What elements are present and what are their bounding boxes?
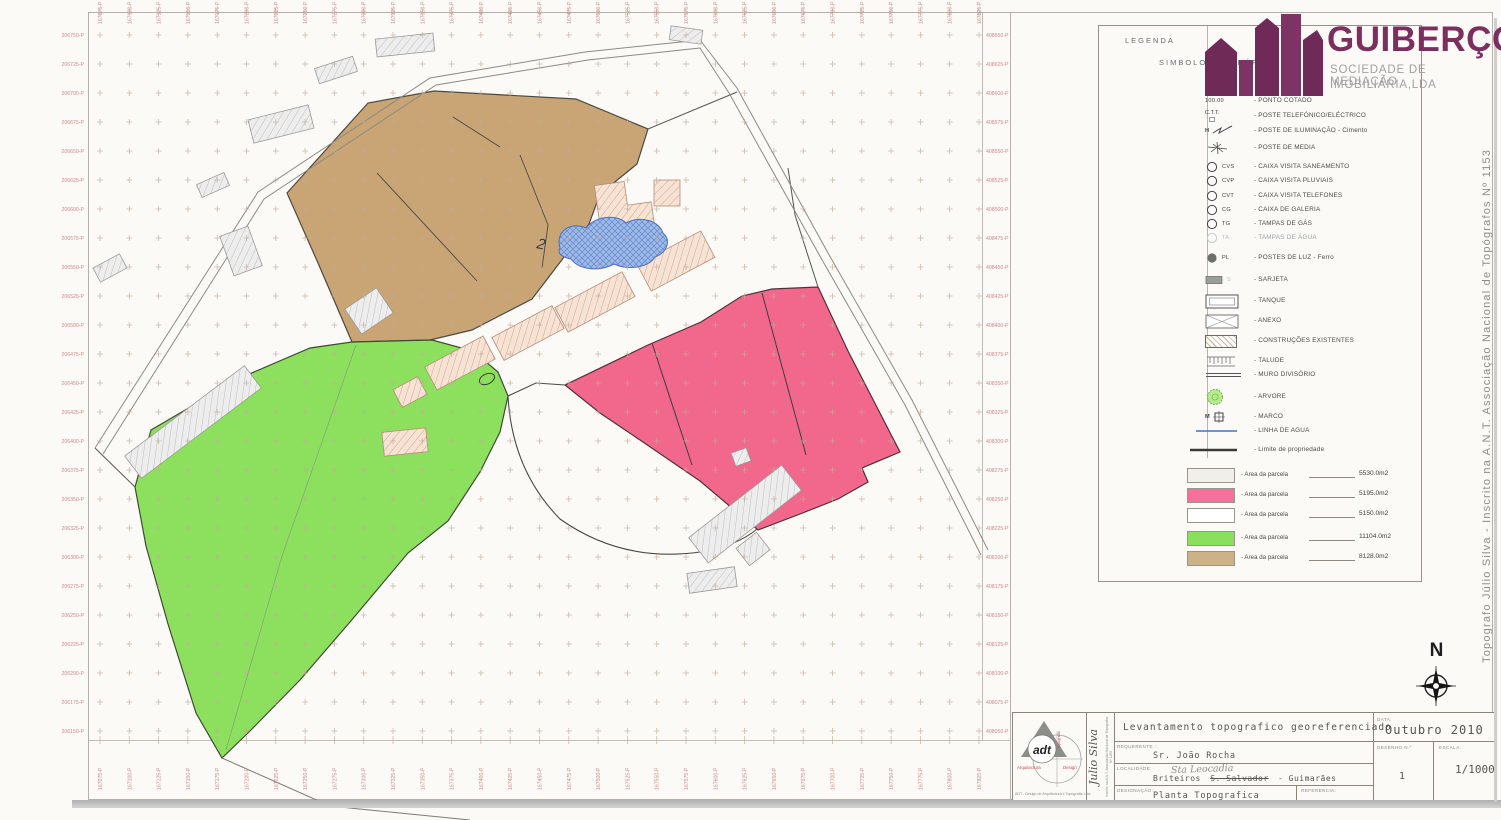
coordinate-label: 408400-P: [986, 323, 1009, 329]
legend-item-label: - CAIXA VISITA PLUVIAIS: [1254, 177, 1333, 184]
coordinate-label: 206375-P: [62, 468, 85, 474]
adt-logo: adt Arquitectura Design Topografia: [1013, 713, 1086, 791]
north-label: N: [1412, 640, 1462, 662]
coordinate-label: 408325-P: [986, 410, 1009, 416]
legend-item-label: - TANQUE: [1254, 297, 1286, 304]
coordinate-label: 206300-P: [62, 555, 85, 561]
coordinate-label: 167650-P: [772, 1, 778, 24]
coordinate-label: 408300-P: [986, 439, 1009, 445]
talude-icon: [1205, 354, 1251, 368]
compass-icon: [1412, 662, 1460, 710]
localidade-label: LOCALIDADE:: [1117, 766, 1152, 771]
coordinate-label: 206575-P: [62, 236, 85, 242]
legend-item: S- SARJETA: [1099, 273, 1421, 288]
muro-icon: [1205, 368, 1251, 382]
coordinate-label: 167400-P: [479, 1, 485, 24]
coordinate-label: 408125-P: [986, 642, 1009, 648]
parcel-area-label: - Area da parcela: [1241, 511, 1288, 518]
parcel-area-label: - Area da parcela: [1241, 554, 1288, 561]
coordinate-label: 206175-P: [62, 700, 85, 706]
coordinate-label: 206225-P: [62, 642, 85, 648]
parcel-area-value: 5530.0m2: [1359, 470, 1388, 477]
coordinate-label: 167300-P: [362, 1, 368, 24]
drawing-title: Levantamento topografico georeferenciado: [1123, 722, 1392, 733]
coordinate-label: 167725-P: [860, 1, 866, 24]
legend-item-label: - SARJETA: [1254, 276, 1288, 283]
coordinate-label: 167100-P: [127, 767, 133, 790]
svg-text:Design: Design: [1063, 765, 1077, 770]
coordinate-label: 206550-P: [62, 265, 85, 271]
coordinate-label: 408525-P: [986, 178, 1009, 184]
coordinate-label: 167350-P: [420, 767, 426, 790]
legend-item: H- POSTE DE ILUMINAÇÃO - Cimento: [1099, 124, 1421, 139]
coordinate-label: 408050-P: [986, 729, 1009, 735]
legend-item-label: - LINHA DE AGUA: [1254, 427, 1310, 434]
escala-value: 1/1000: [1455, 763, 1495, 776]
parcel-area-row: - Area da parcela5195.0m2: [1099, 488, 1421, 504]
coordinate-label: 167675-P: [801, 767, 807, 790]
parcel-area-value: 5150.0m2: [1359, 510, 1388, 517]
legend-item-label: - ANEXO: [1254, 317, 1281, 324]
legend-item-label: - ARVORE: [1254, 393, 1286, 400]
arvore-icon: [1205, 390, 1251, 404]
parcel-color-swatch: [1187, 468, 1235, 483]
coordinate-label: 206350-P: [62, 497, 85, 503]
coordinate-label: 408250-P: [986, 497, 1009, 503]
dot-icon: PL: [1205, 251, 1251, 265]
coordinate-label: 167075-P: [98, 1, 104, 24]
coordinate-label: 167175-P: [215, 767, 221, 790]
coordinate-label: 408500-P: [986, 207, 1009, 213]
legend-item-label: - TAMPAS DE ÁGUA: [1254, 234, 1317, 241]
legend-item-label: - TAMPAS DE GÁS: [1254, 220, 1312, 227]
coordinate-label: 206400-P: [62, 439, 85, 445]
escala-label: ESCALA:: [1439, 745, 1461, 750]
coordinate-label: 167500-P: [596, 1, 602, 24]
designacao-label: DESIGNAÇÃO:: [1117, 788, 1153, 793]
coordinate-label: 206150-P: [62, 729, 85, 735]
desenho-label: DESENHO N.º: [1377, 745, 1412, 750]
coordinate-label: 167325-P: [391, 1, 397, 24]
coordinate-label: 167625-P: [743, 767, 749, 790]
parcel-leader-line: [1309, 517, 1355, 518]
parcel-area-label: - Area da parcela: [1241, 471, 1288, 478]
legend-item-label: - CAIXA VISITA SANEAMENTO: [1254, 163, 1349, 170]
parcel-color-swatch: [1187, 508, 1235, 523]
coordinate-label: 408350-P: [986, 381, 1009, 387]
coordinate-label: 408475-P: [986, 236, 1009, 242]
sarjeta-icon: S: [1205, 273, 1251, 287]
legend-item: - ARVORE: [1099, 390, 1421, 405]
coordinate-label: 167750-P: [889, 1, 895, 24]
coordinate-label: 167200-P: [245, 767, 251, 790]
brand-subtitle-2: IMOBILIÁRIA,LDA: [1330, 79, 1437, 91]
coordinate-label: 167150-P: [186, 767, 192, 790]
coordinate-label: 206700-P: [62, 91, 85, 97]
legend-item: M- MARCO: [1099, 410, 1421, 425]
legend-item-label: - MARCO: [1254, 413, 1283, 420]
parcel-area-label: - Area da parcela: [1241, 491, 1288, 498]
limite-icon: [1205, 443, 1251, 457]
legend-item-label: - CAIXA DE GALERIA: [1254, 206, 1320, 213]
coordinate-label: 167125-P: [157, 1, 163, 24]
coordinate-label: 408575-P: [986, 120, 1009, 126]
legend-item-label: - TALUDE: [1254, 357, 1284, 364]
coordinate-label: 167425-P: [508, 767, 514, 790]
parcel-green-11104: [135, 340, 508, 758]
coordinate-label: 167125-P: [157, 767, 163, 790]
coordinate-label: 408550-P: [986, 149, 1009, 155]
coordinate-label: 167825-P: [977, 1, 983, 24]
coordinate-label: 167700-P: [831, 1, 837, 24]
coordinate-label: 167625-P: [743, 1, 749, 24]
coordinate-label: 167150-P: [186, 1, 192, 24]
coordinate-label: 167450-P: [538, 767, 544, 790]
parcel-leader-line: [1309, 477, 1355, 478]
coordinate-label: 167250-P: [303, 767, 309, 790]
circle-faint-icon: TA: [1205, 231, 1251, 245]
legend-box: LEGENDA SIMBOLOGIA GRÁFICA 100.00- PONTO…: [1098, 25, 1422, 582]
coordinate-label: 408600-P: [986, 91, 1009, 97]
topographer-signature: Julio Silva: [1087, 717, 1105, 797]
coordinate-label: 167775-P: [918, 767, 924, 790]
coordinate-label: 167650-P: [772, 767, 778, 790]
coordinate-label: 206625-P: [62, 178, 85, 184]
coordinate-label: 167350-P: [420, 1, 426, 24]
legend-item: CVS- CAIXA VISITA SANEAMENTO: [1099, 160, 1421, 175]
legend-item-label: - CAIXA VISITA TELEFONES: [1254, 192, 1342, 199]
coordinate-label: 408200-P: [986, 555, 1009, 561]
svg-text:Arquitectura: Arquitectura: [1017, 765, 1041, 770]
ilum-icon: H: [1205, 124, 1251, 138]
localidade-post: - Guimarães: [1278, 774, 1336, 783]
legend-item-label: - POSTE DE ILUMINAÇÃO - Cimento: [1254, 127, 1367, 134]
coordinate-label: 167200-P: [245, 1, 251, 24]
coordinate-label: 167275-P: [332, 767, 338, 790]
legend-item-label: - CONSTRUÇÕES EXISTENTES: [1254, 337, 1354, 344]
scan-shadow-right: [1494, 18, 1497, 802]
coordinate-label: 206325-P: [62, 526, 85, 532]
legend-item: CG- CAIXA DE GALERIA: [1099, 203, 1421, 218]
parcel-leader-line: [1309, 497, 1355, 498]
legend-title: LEGENDA: [1125, 36, 1175, 45]
coordinate-label: 408650-P: [986, 33, 1009, 39]
parcel-area-value: 8128.0m2: [1359, 553, 1388, 560]
coordinate-label: 167750-P: [889, 767, 895, 790]
requerente-label: REQUERENTE :: [1117, 744, 1156, 749]
coordinate-label: 167400-P: [479, 767, 485, 790]
coordinate-label: 167575-P: [684, 767, 690, 790]
coordinate-label: 167175-P: [215, 1, 221, 24]
parcel-area-row: - Area da parcela11104.0m2: [1099, 531, 1421, 547]
legend-item: PL- POSTES DE LUZ - Ferro: [1099, 251, 1421, 266]
localidade-strike: S. Salvador: [1210, 774, 1268, 783]
coordinate-label: 206600-P: [62, 207, 85, 213]
parcel-area-value: 5195.0m2: [1359, 490, 1388, 497]
coordinate-label: 408275-P: [986, 468, 1009, 474]
scan-shadow-bottom: [72, 800, 1501, 808]
coordinate-label: 167550-P: [655, 1, 661, 24]
data-value: Outubro 2010: [1385, 723, 1484, 737]
coordinate-label: 408150-P: [986, 613, 1009, 619]
parcel-pink-5195: [565, 287, 900, 530]
coordinate-label: 167250-P: [303, 1, 309, 24]
legend-item: - Limite de propriedade: [1099, 443, 1421, 458]
coordinate-label: 167475-P: [567, 767, 573, 790]
coordinate-label: 408375-P: [986, 352, 1009, 358]
coordinate-label: 167525-P: [625, 767, 631, 790]
circle-icon: CVP: [1205, 174, 1251, 188]
circle-icon: CVS: [1205, 160, 1251, 174]
coordinate-label: 167500-P: [596, 767, 602, 790]
parcel-color-swatch: [1187, 531, 1235, 546]
parcel-area-row: - Area da parcela8128.0m2: [1099, 551, 1421, 567]
legend-item: CVT- CAIXA VISITA TELEFONES: [1099, 189, 1421, 204]
brand-name: GUIBERÇO: [1327, 20, 1501, 60]
coordinate-label: 167425-P: [508, 1, 514, 24]
coordinate-label: 206750-P: [62, 33, 85, 39]
legend-item: TA- TAMPAS DE ÁGUA: [1099, 231, 1421, 246]
coordinate-label: 408175-P: [986, 584, 1009, 590]
coordinate-label: 206250-P: [62, 613, 85, 619]
coordinate-label: 408625-P: [986, 62, 1009, 68]
legend-item-label: - POSTE DE MEDIA: [1254, 144, 1315, 151]
localidade-pre: Briteiros: [1153, 774, 1201, 783]
north-indicator: N: [1412, 640, 1462, 712]
coordinate-label: 167450-P: [538, 1, 544, 24]
coordinate-label: 167825-P: [977, 767, 983, 790]
legend-item: - POSTE DE MEDIA: [1099, 141, 1421, 156]
parcel-leader-line: [1309, 560, 1355, 561]
legend-item-label: - Limite de propriedade: [1254, 446, 1324, 453]
coordinate-label: 167575-P: [684, 1, 690, 24]
agua-icon: [1205, 424, 1251, 438]
parcel-leader-line: [1309, 540, 1355, 541]
parcel-color-swatch: [1187, 488, 1235, 503]
coordinate-label: 206450-P: [62, 381, 85, 387]
coordinate-label: 206275-P: [62, 584, 85, 590]
coordinate-label: 167225-P: [274, 767, 280, 790]
legend-item: TG- TAMPAS DE GÁS: [1099, 217, 1421, 232]
coordinate-label: 206525-P: [62, 294, 85, 300]
desenho-value: 1: [1399, 771, 1405, 782]
coordinate-label: 167225-P: [274, 1, 280, 24]
parcel-color-swatch: [1187, 551, 1235, 566]
buildings-logo-icon: [1203, 8, 1325, 100]
coordinate-label: 167275-P: [332, 1, 338, 24]
coordinate-label: 167600-P: [713, 767, 719, 790]
circle-icon: CVT: [1205, 189, 1251, 203]
legend-item: - TALUDE: [1099, 354, 1421, 369]
legend-item: - CONSTRUÇÕES EXISTENTES: [1099, 334, 1421, 349]
coordinate-label: 167800-P: [948, 767, 954, 790]
coordinate-label: 167325-P: [391, 767, 397, 790]
circle-icon: CG: [1205, 203, 1251, 217]
media-icon: [1205, 141, 1251, 155]
coordinate-label: 206500-P: [62, 323, 85, 329]
topographer-registration: Inscrito na A.N.T. Associação Nacional d…: [1105, 715, 1114, 799]
scanned-topographic-plan: 2 206750-P206725-P206700-P206675-P206650…: [0, 0, 1501, 820]
data-label: DATA:: [1377, 717, 1392, 722]
coordinate-label: 408450-P: [986, 265, 1009, 271]
parcel-area-row: - Area da parcela5150.0m2: [1099, 508, 1421, 524]
coordinate-label: 408100-P: [986, 671, 1009, 677]
tanque-icon: [1205, 294, 1251, 308]
hatch-icon: [1205, 334, 1251, 348]
coordinate-label: 206650-P: [62, 149, 85, 155]
coordinate-label: 206725-P: [62, 62, 85, 68]
coordinate-label: 408225-P: [986, 526, 1009, 532]
coordinate-label: 167375-P: [450, 767, 456, 790]
anexo-icon: [1205, 314, 1251, 328]
referencia-label: REFERENCIA:: [1301, 788, 1336, 793]
coordinate-label: 408425-P: [986, 294, 1009, 300]
legend-item: - MURO DIVISÓRIO: [1099, 368, 1421, 383]
legend-item-label: - POSTE TELEFÓNICO/ELÉCTRICO: [1254, 112, 1366, 119]
coordinate-label: 167075-P: [98, 767, 104, 790]
coordinate-label: 167800-P: [948, 1, 954, 24]
coordinate-label: 206475-P: [62, 352, 85, 358]
coordinate-label: 206425-P: [62, 410, 85, 416]
svg-text:adt: adt: [1033, 743, 1052, 757]
coordinate-label: 167725-P: [860, 767, 866, 790]
adt-caption: ADT - Design de Arquitectura e Topografi…: [1015, 792, 1090, 796]
legend-item: - TANQUE: [1099, 294, 1421, 309]
circle-icon: TG: [1205, 217, 1251, 231]
coordinate-label: 408075-P: [986, 700, 1009, 706]
coordinate-label: 167525-P: [625, 1, 631, 24]
coordinate-label: 206200-P: [62, 671, 85, 677]
ctt-icon: C.T.T.: [1205, 109, 1251, 123]
localidade-value: Briteiros S. Salvador - Guimarães: [1153, 774, 1336, 783]
legend-item-label: - MURO DIVISÓRIO: [1254, 371, 1315, 378]
coordinate-label: 167100-P: [127, 1, 133, 24]
legend-item: - LINHA DE AGUA: [1099, 424, 1421, 439]
legend-item-label: - POSTES DE LUZ - Ferro: [1254, 254, 1334, 261]
coordinate-label: 167600-P: [713, 1, 719, 24]
coordinate-label: 167775-P: [918, 1, 924, 24]
coordinate-label: 167675-P: [801, 1, 807, 24]
legend-item: C.T.T.- POSTE TELEFÓNICO/ELÉCTRICO: [1099, 109, 1421, 124]
title-block: adt Arquitectura Design Topografia ADT -…: [1012, 712, 1495, 802]
parcel-area-row: - Area da parcela5530.0m2: [1099, 468, 1421, 484]
svg-text:Topografia: Topografia: [1057, 730, 1061, 749]
brand-logo: GUIBERÇO SOCIEDADE DE MEDIAÇÃO IMOBILIÁR…: [1203, 8, 1495, 100]
requerente-value: Sr. João Rocha: [1153, 751, 1236, 761]
legend-item: - ANEXO: [1099, 314, 1421, 329]
parcel-area-value: 11104.0m2: [1359, 533, 1391, 540]
marco-icon: M: [1205, 410, 1251, 424]
coordinate-label: 167700-P: [831, 767, 837, 790]
coordinate-label: 167375-P: [450, 1, 456, 24]
coordinate-label: 206675-P: [62, 120, 85, 126]
legend-item: CVP- CAIXA VISITA PLUVIAIS: [1099, 174, 1421, 189]
coordinate-label: 167300-P: [362, 767, 368, 790]
coordinate-label: 167475-P: [567, 1, 573, 24]
parcel-area-label: - Area da parcela: [1241, 534, 1288, 541]
coordinate-label: 167550-P: [655, 767, 661, 790]
